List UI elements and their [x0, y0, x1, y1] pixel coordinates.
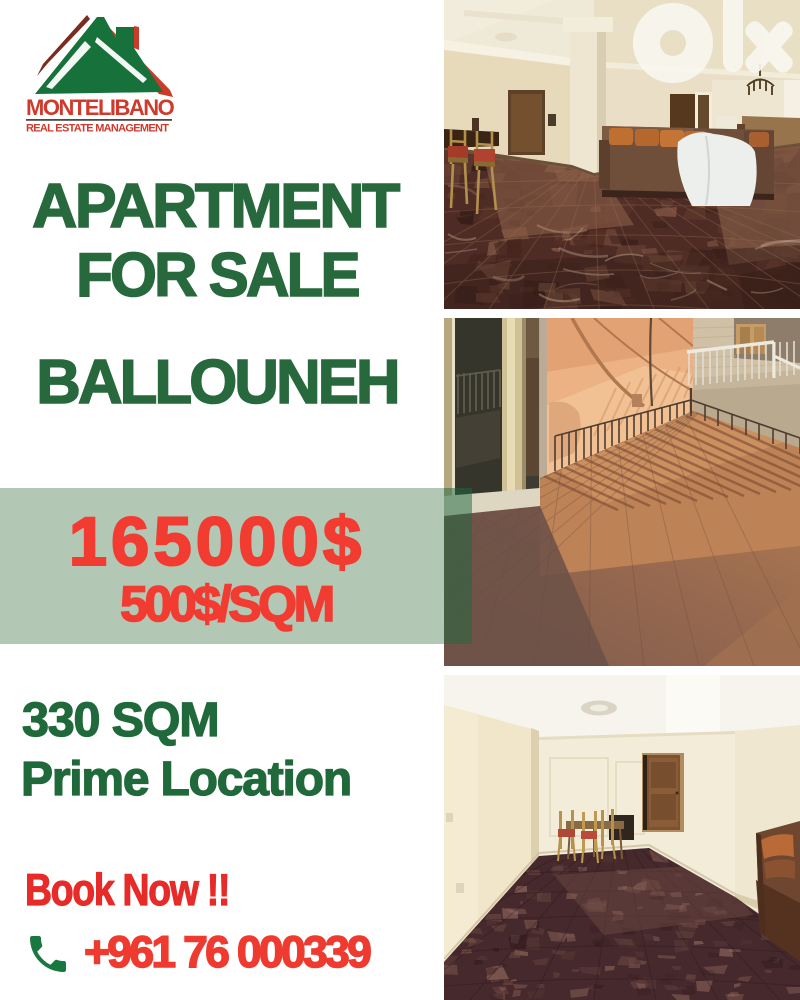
svg-text:REAL ESTATE MANAGEMENT: REAL ESTATE MANAGEMENT: [26, 123, 169, 135]
svg-text:MONTELIBANO: MONTELIBANO: [26, 95, 175, 120]
